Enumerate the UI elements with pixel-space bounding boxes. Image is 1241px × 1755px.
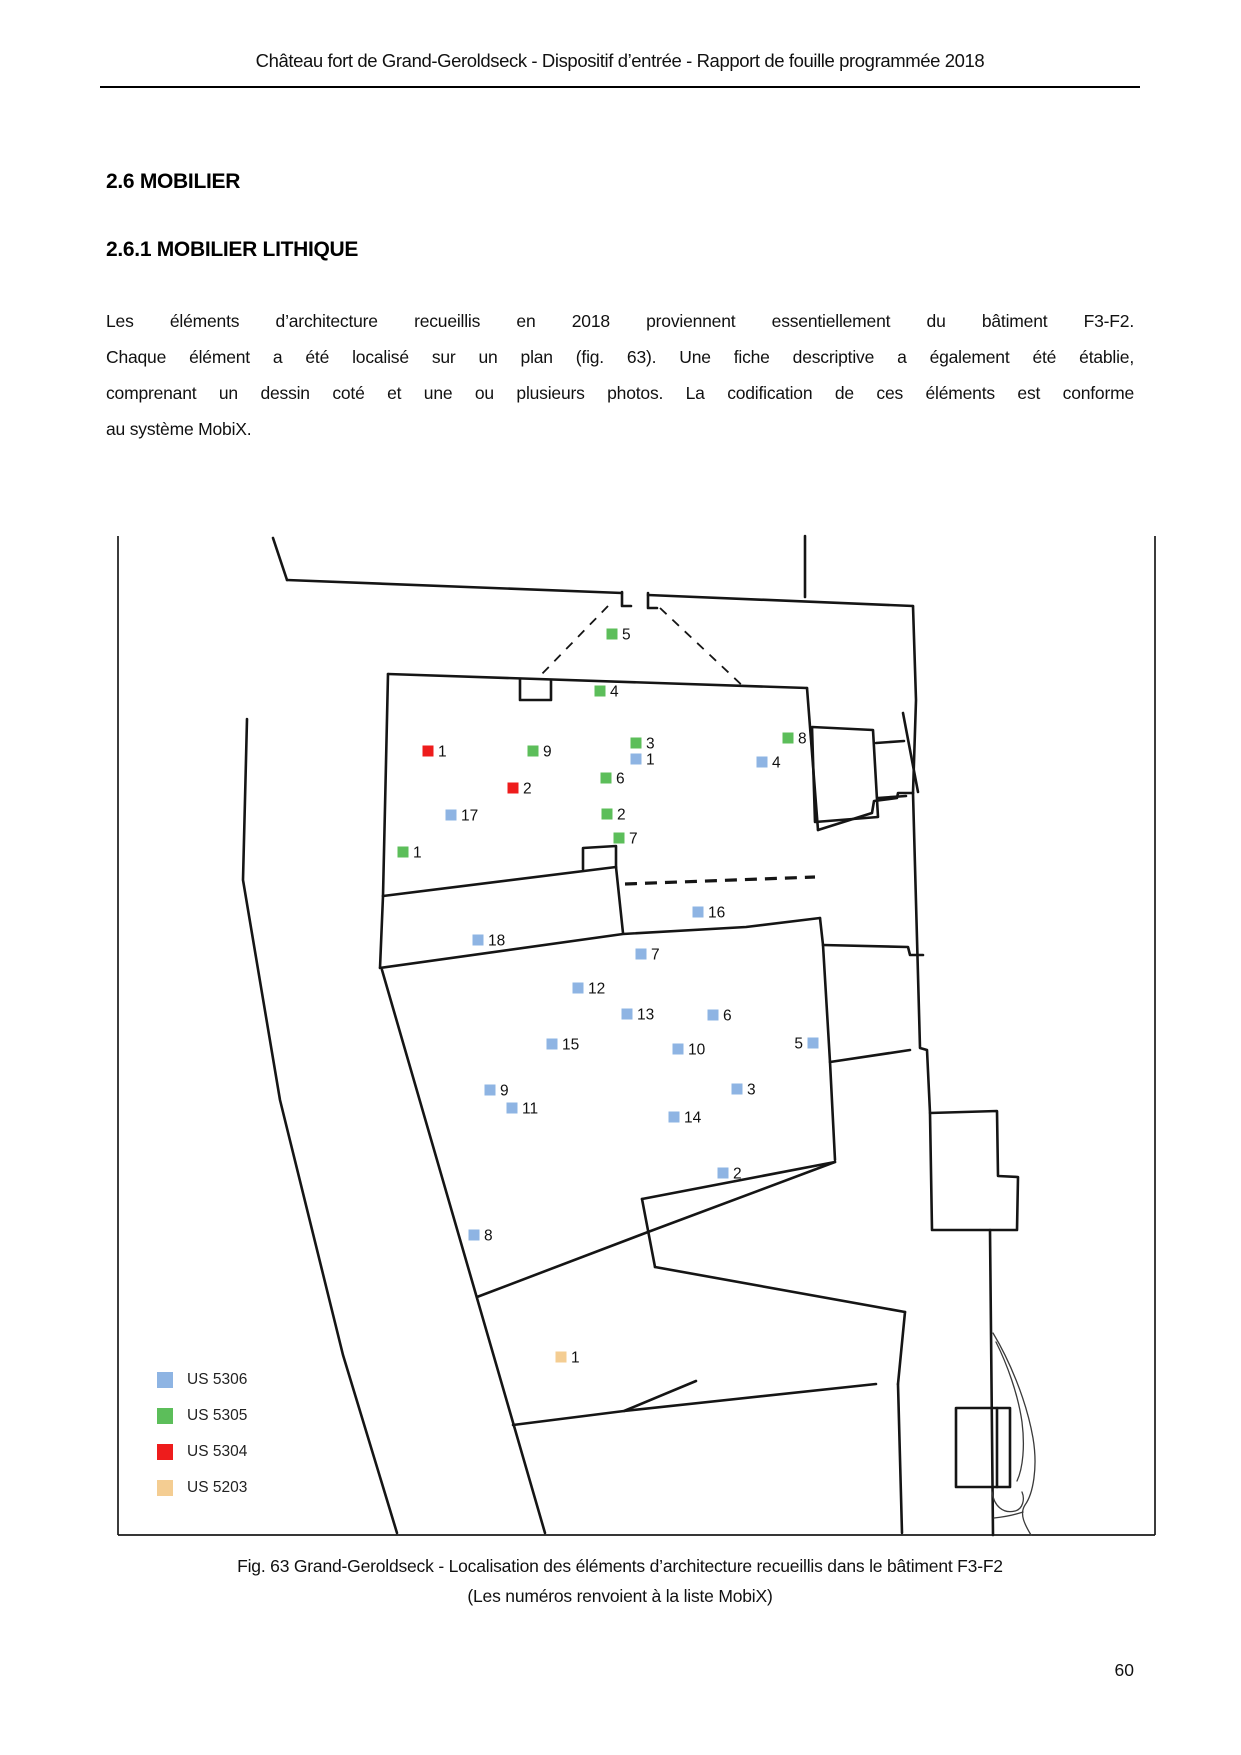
plan-marker-label: 9 [543,744,552,761]
plan-marker-label: 5 [622,627,631,644]
plan-marker: 18 [473,933,506,950]
plan-marker-label: 1 [571,1350,580,1367]
plan-marker-square [622,1009,633,1020]
legend-label: US 5306 [187,1371,247,1389]
plan-marker-label: 17 [461,808,478,825]
plan-marker-label: 15 [562,1037,579,1054]
plan-marker: 7 [636,947,660,964]
plan-marker-square [446,810,457,821]
plan-marker: 5 [794,1036,818,1053]
plan-marker-square [602,809,613,820]
legend-item: US 5203 [157,1470,247,1506]
plan-marker-label: 3 [646,736,655,753]
legend-item: US 5305 [157,1398,247,1434]
plan-marker: 1 [631,752,655,769]
plan-walls [243,536,1018,1535]
plan-marker-square [507,1103,518,1114]
plan-marker-label: 4 [610,684,619,701]
plan-marker-label: 9 [500,1083,509,1100]
plan-marker-square [573,983,584,994]
plan-marker-label: 6 [723,1008,732,1025]
plan-marker: 3 [732,1082,756,1099]
plan-marker: 3 [631,736,655,753]
legend-item: US 5306 [157,1362,247,1398]
page-number: 60 [1034,1660,1134,1681]
plan-marker: 8 [469,1228,493,1245]
plan-marker-label: 18 [488,933,505,950]
plan-marker-label: 16 [708,905,725,922]
plan-marker: 17 [446,808,479,825]
plan-marker-label: 7 [651,947,660,964]
plan-marker-square [669,1112,680,1123]
plan-marker-label: 3 [747,1082,756,1099]
legend-swatch [157,1480,173,1496]
plan-marker: 9 [485,1083,509,1100]
plan-marker-square [673,1044,684,1055]
figure-caption: Fig. 63 Grand-Geroldseck - Localisation … [100,1556,1140,1577]
plan-marker-label: 14 [684,1110,702,1127]
figure-caption-note: (Les numéros renvoient à la liste MobiX) [100,1586,1140,1607]
document-page: Château fort de Grand-Geroldseck - Dispo… [0,0,1241,1755]
plan-marker-square [423,746,434,757]
plan-marker-square [631,754,642,765]
plan-marker: 1 [556,1350,580,1367]
plan-marker-square [473,935,484,946]
plan-marker-label: 7 [629,831,638,848]
plan-marker-square [556,1352,567,1363]
plan-marker-square [732,1084,743,1095]
plan-marker-square [808,1038,819,1049]
plan-marker-square [595,686,606,697]
plan-marker-square [636,949,647,960]
plan-marker-label: 4 [772,755,781,772]
plan-marker-square [693,907,704,918]
plan-marker-label: 2 [523,781,532,798]
plan-marker: 4 [757,755,782,772]
plan-marker: 8 [783,731,807,748]
plan-marker-square [718,1168,729,1179]
plan-marker-label: 10 [688,1042,706,1059]
plan-marker: 6 [708,1008,732,1025]
plan-marker: 14 [669,1110,702,1127]
plan-marker: 1 [423,744,447,761]
plan-marker-label: 8 [798,731,807,748]
plan-marker-square [485,1085,496,1096]
plan-marker-label: 8 [484,1228,493,1245]
plan-marker-label: 12 [588,981,605,998]
plan-marker-label: 11 [522,1101,538,1118]
plan-legend: US 5306US 5305US 5304US 5203 [157,1362,247,1506]
legend-label: US 5304 [187,1443,247,1461]
plan-marker-label: 1 [438,744,447,761]
plan-marker-square [528,746,539,757]
plan-marker: 10 [673,1042,706,1059]
plan-marker-square [614,833,625,844]
plan-marker-square [508,783,519,794]
plan-marker: 15 [547,1037,580,1054]
plan-marker-square [469,1230,480,1241]
legend-label: US 5203 [187,1479,247,1497]
figure-63-plan: 549386271121417161871213615105931114281 … [0,0,1241,1755]
plan-marker-label: 13 [637,1007,654,1024]
plan-markers-layer: 549386271121417161871213615105931114281 [398,627,819,1367]
plan-marker-square [398,847,409,858]
plan-marker-label: 2 [733,1166,742,1183]
plan-marker: 1 [398,845,422,862]
legend-swatch [157,1372,173,1388]
plan-marker-label: 2 [617,807,626,824]
plan-marker-square [708,1010,719,1021]
plan-marker: 13 [622,1007,655,1024]
plan-marker: 2 [718,1166,742,1183]
legend-swatch [157,1444,173,1460]
plan-marker-square [631,738,642,749]
plan-marker: 11 [507,1101,539,1118]
plan-marker-square [757,757,768,768]
plan-marker: 7 [614,831,638,848]
legend-swatch [157,1408,173,1424]
plan-marker-square [783,733,794,744]
plan-marker: 2 [602,807,626,824]
plan-dashed-walls [540,606,815,884]
plan-marker: 16 [693,905,726,922]
figure-frame [118,536,1155,1535]
plan-marker-square [547,1039,558,1050]
plan-marker: 5 [607,627,631,644]
plan-marker-label: 1 [413,845,422,862]
rock-contour [992,1333,1035,1535]
plan-marker-label: 6 [616,771,625,788]
plan-marker: 12 [573,981,606,998]
plan-marker: 2 [508,781,532,798]
plan-marker: 6 [601,771,625,788]
legend-label: US 5305 [187,1407,247,1425]
plan-marker-label: 5 [794,1036,803,1053]
plan-marker-square [601,773,612,784]
plan-marker: 4 [595,684,620,701]
plan-marker-label: 1 [646,752,655,769]
legend-item: US 5304 [157,1434,247,1470]
plan-marker-square [607,629,618,640]
plan-marker: 9 [528,744,552,761]
